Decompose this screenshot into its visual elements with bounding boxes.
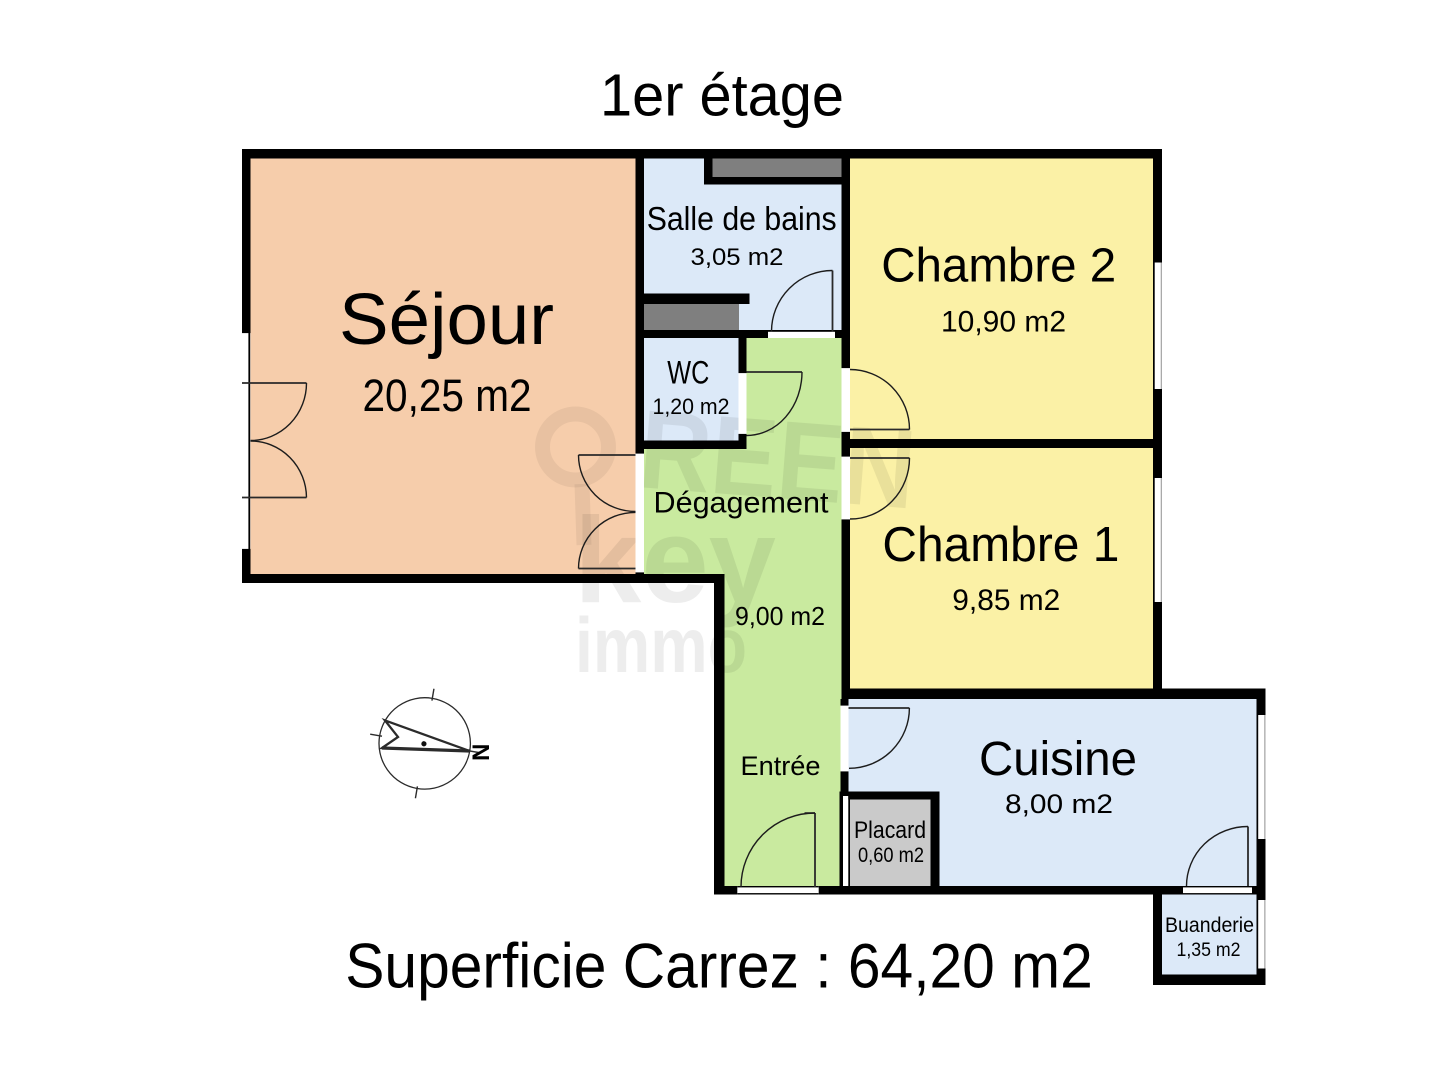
svg-text:Salle de bains: Salle de bains [647, 200, 837, 237]
svg-text:WC: WC [667, 355, 709, 391]
svg-text:8,00 m2: 8,00 m2 [1005, 789, 1113, 819]
svg-text:3,05 m2: 3,05 m2 [691, 244, 784, 271]
svg-text:10,90 m2: 10,90 m2 [941, 306, 1066, 339]
svg-text:Cuisine: Cuisine [979, 733, 1137, 786]
svg-text:9,00 m2: 9,00 m2 [735, 601, 825, 631]
svg-text:9,85 m2: 9,85 m2 [952, 584, 1060, 617]
svg-text:Placard: Placard [854, 817, 926, 844]
svg-text:Entrée: Entrée [741, 751, 821, 781]
svg-text:0,60 m2: 0,60 m2 [858, 844, 924, 867]
svg-text:N: N [466, 744, 493, 761]
svg-text:Superficie Carrez : 64,20 m2: Superficie Carrez : 64,20 m2 [345, 932, 1093, 1002]
svg-text:Chambre 2: Chambre 2 [881, 240, 1116, 293]
svg-text:Buanderie: Buanderie [1165, 914, 1254, 937]
svg-text:1er étage: 1er étage [600, 62, 844, 128]
svg-text:1,35 m2: 1,35 m2 [1177, 940, 1241, 961]
svg-text:Séjour: Séjour [339, 280, 554, 360]
svg-text:1,20 m2: 1,20 m2 [653, 394, 730, 419]
svg-text:Dégagement: Dégagement [654, 487, 830, 520]
svg-text:20,25 m2: 20,25 m2 [363, 370, 532, 421]
svg-text:Chambre 1: Chambre 1 [882, 518, 1119, 572]
